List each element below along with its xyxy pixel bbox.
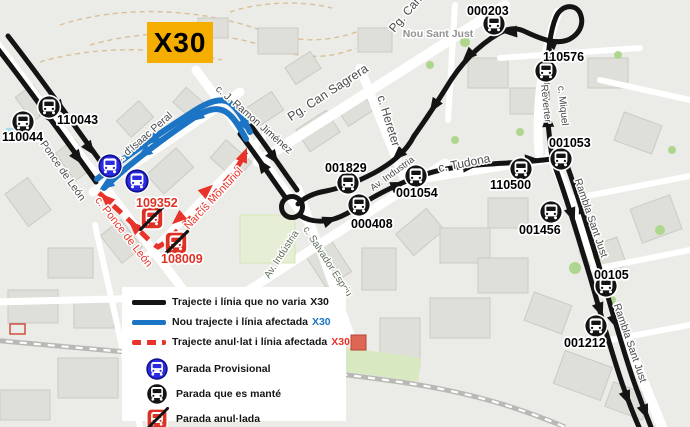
provisional-stop-icon — [145, 357, 169, 381]
dashed-line-swatch — [132, 340, 166, 345]
stop-001053 — [549, 147, 573, 171]
stop-label-001053: 001053 — [549, 136, 591, 150]
stop-label-001054: 001054 — [396, 186, 438, 200]
legend-item-4: Parada que es manté — [132, 381, 346, 406]
legend-label: Nou trajecte i línia afectada — [172, 316, 308, 328]
street-label-7: c. Miquel — [555, 85, 570, 126]
stop-label-109352: 109352 — [136, 196, 178, 210]
street-label-16: c. Narcís Monturiol — [174, 165, 245, 240]
stop-001456 — [539, 200, 563, 224]
kept-stop-icon — [145, 382, 169, 406]
legend-line-tag: X30 — [310, 296, 329, 308]
street-label-11: Nou Sant Just — [403, 28, 474, 40]
stop-001212 — [584, 314, 608, 338]
provisional-stop-1 — [97, 153, 123, 179]
stop-label-00105: 00105 — [594, 268, 629, 282]
provisional-stop-2 — [124, 168, 150, 194]
cancelled-stop-icon — [145, 407, 169, 427]
stop-000408 — [347, 193, 371, 217]
solid-line-swatch — [132, 300, 166, 305]
stop-label-108009: 108009 — [161, 252, 203, 266]
stop-label-110044: 110044 — [2, 130, 43, 144]
stop-label-110576: 110576 — [543, 50, 584, 64]
legend-item-3: Parada Provisional — [132, 356, 346, 381]
legend-label: Parada que es manté — [176, 388, 281, 400]
line-badge: X30 — [147, 22, 213, 63]
legend-label: Parada Provisional — [176, 363, 271, 375]
solid-line-swatch — [132, 320, 166, 325]
legend-item-2: Trajecte anul·lat i línia afectadaX30 — [132, 332, 346, 352]
stop-label-001212: 001212 — [564, 336, 606, 350]
legend-item-0: Trajecte i línia que no variaX30 — [132, 292, 346, 312]
legend-item-5: Parada anul·lada — [132, 406, 346, 427]
legend-label: Parada anul·lada — [176, 413, 260, 425]
stop-001054 — [404, 164, 428, 188]
stop-label-000203: 000203 — [467, 4, 509, 18]
stop-label-110043: 110043 — [57, 113, 98, 127]
legend-item-1: Nou trajecte i línia afectadaX30 — [132, 312, 346, 332]
stop-label-001456: 001456 — [519, 223, 561, 237]
legend-line-tag: X30 — [331, 336, 350, 348]
legend-panel: Trajecte i línia que no variaX30Nou traj… — [122, 287, 346, 421]
legend-label: Trajecte anul·lat i línia afectada — [172, 336, 327, 348]
stop-label-110500: 110500 — [490, 178, 531, 192]
legend-label: Trajecte i línia que no varia — [172, 296, 306, 308]
map-notice: c. Ponce de Leónc. d'Isaac Peralc. J. Ra… — [0, 0, 690, 427]
stop-label-000408: 000408 — [351, 217, 393, 231]
legend-line-tag: X30 — [312, 316, 331, 328]
stop-label-001829: 001829 — [325, 161, 367, 175]
